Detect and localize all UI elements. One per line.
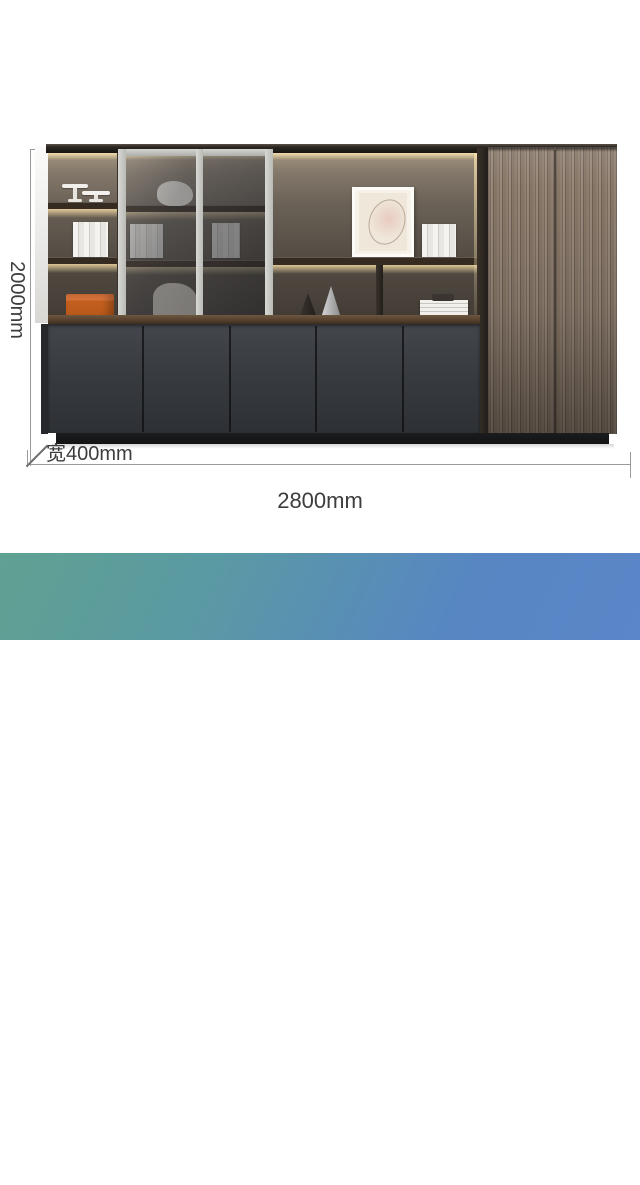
product-figure: 2000mm	[0, 0, 640, 553]
glass-door-middle-stile	[196, 149, 203, 323]
picture-frame	[352, 187, 414, 257]
picture-frame-art-line	[363, 195, 407, 250]
picture-frame-art	[359, 193, 407, 251]
decor-books-white	[422, 224, 456, 257]
shelf-light-glow	[48, 209, 117, 218]
left-bay-shelf-1	[48, 202, 117, 209]
decor-cake-stand-base	[89, 199, 103, 202]
lower-door-seam	[142, 326, 144, 432]
decor-object-on-stack	[432, 294, 454, 301]
lower-cabinet-side	[41, 324, 48, 434]
length-dimension-label: 2800mm	[238, 488, 402, 514]
decor-cake-stand-stem	[73, 188, 77, 199]
counter-top	[48, 315, 480, 324]
lower-cabinet-doors	[48, 324, 480, 433]
lower-door-seam	[402, 326, 404, 432]
length-dimension-right-tick	[630, 452, 631, 478]
wood-tall-cabinet	[488, 147, 617, 434]
middle-bay-shelf	[273, 257, 480, 265]
product-title: 七门文件柜	[0, 1115, 640, 1151]
decor-cake-stand-base	[68, 199, 82, 202]
product-size-label: 尺寸：长2800宽400*高2000(mm)	[0, 1155, 640, 1185]
left-bay-shelf-2	[48, 257, 117, 264]
height-dimension-label: 2000mm	[6, 250, 28, 350]
middle-bay-sub-divider	[376, 265, 383, 318]
wood-door-seam	[554, 150, 556, 434]
glass-door-right-stile	[265, 149, 273, 323]
plinth	[56, 433, 609, 444]
depth-dimension-label: 宽400mm	[46, 443, 133, 465]
height-dimension-line	[30, 149, 31, 466]
decor-books-white	[73, 222, 108, 257]
cabinet-left-side-panel	[35, 146, 48, 323]
info-banner: 七门文件柜 尺寸：长2800宽400*高2000(mm)	[0, 553, 640, 640]
lower-door-seam	[315, 326, 317, 432]
shelf-light-glow	[48, 264, 117, 273]
glass-door-left-stile	[118, 149, 126, 323]
floor-shadow	[52, 444, 614, 449]
lower-door-seam	[229, 326, 231, 432]
